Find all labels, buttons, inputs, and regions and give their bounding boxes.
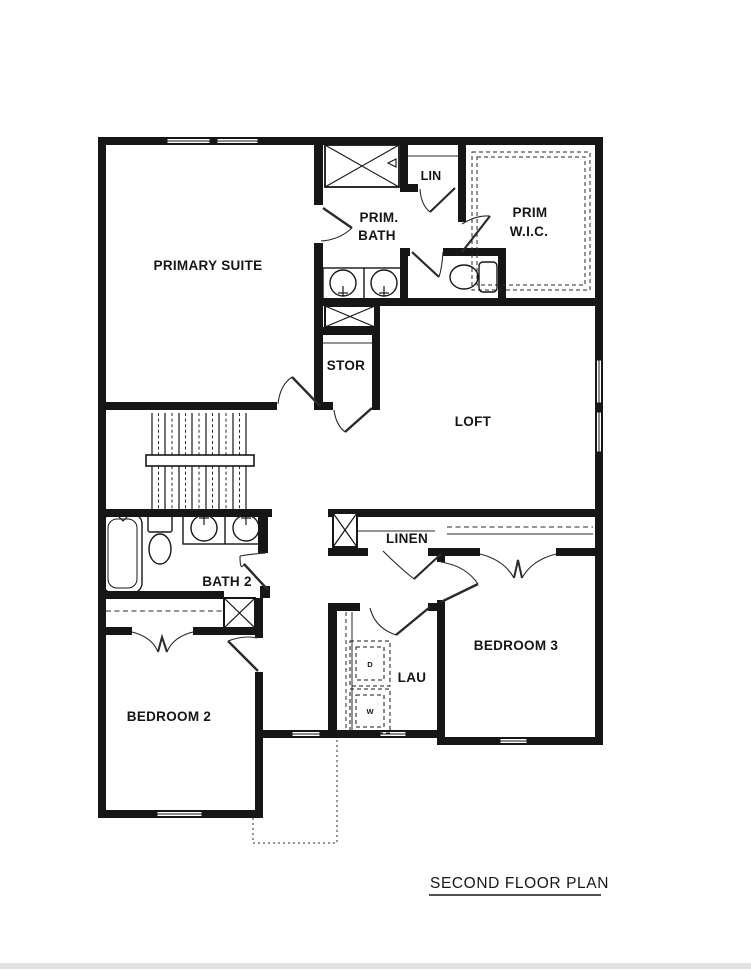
room-label-bedroom2: BEDROOM 2	[127, 709, 211, 724]
primary-suite-door	[278, 377, 320, 406]
bedroom3-closet-doors	[480, 554, 556, 578]
prim-bath-door	[321, 208, 352, 241]
window	[217, 139, 258, 144]
plan-title: SECOND FLOOR PLAN	[430, 875, 609, 892]
bedroom2-closet-doors	[132, 632, 193, 652]
bedroom2-door	[228, 637, 258, 671]
plan-title-block: SECOND FLOOR PLAN	[429, 875, 609, 895]
toilet-room-door	[412, 252, 443, 277]
bottom-edge-artifact	[0, 963, 751, 969]
bath2-toilet-fixture	[148, 516, 172, 564]
room-label-prim-bath-1: PRIM.	[359, 210, 398, 225]
window	[597, 412, 602, 452]
room-label-lin: LIN	[421, 169, 442, 183]
room-label-prim-wic-1: PRIM	[513, 205, 548, 220]
chase-box	[325, 306, 375, 327]
lau-counter-lines	[346, 612, 352, 731]
roof-below-outline	[253, 739, 337, 843]
chase-box	[333, 513, 357, 547]
room-label-primary-suite: PRIMARY SUITE	[154, 258, 263, 273]
wic-shelving	[472, 152, 590, 290]
bath2-tub-fixture	[103, 513, 142, 593]
floor-plan-page: PRIMARY SUITE PRIM. BATH LIN PRIM W.I.C.…	[0, 0, 751, 971]
window	[380, 732, 406, 737]
prim-toilet-fixture	[450, 262, 497, 292]
room-label-stor: STOR	[327, 358, 365, 373]
room-label-bath2: BATH 2	[202, 574, 252, 589]
appliance-label-dryer: D	[367, 660, 373, 669]
chase-box	[224, 598, 255, 628]
faucet-icon	[379, 286, 389, 296]
appliance-label-washer: W	[366, 707, 374, 716]
window	[157, 812, 202, 817]
faucet-icon	[338, 286, 348, 296]
room-label-linen: LINEN	[386, 531, 428, 546]
floor-plan-drawing: PRIMARY SUITE PRIM. BATH LIN PRIM W.I.C.…	[0, 0, 751, 971]
window	[167, 139, 210, 144]
room-label-prim-bath-2: BATH	[358, 228, 396, 243]
wic-door	[462, 216, 490, 252]
lin-closet-door	[420, 188, 455, 212]
shower-fixture	[325, 145, 399, 187]
stair-handrail	[146, 455, 254, 466]
lau-door	[370, 607, 430, 635]
stor-door	[334, 408, 372, 432]
room-label-loft: LOFT	[455, 414, 492, 429]
window	[292, 732, 320, 737]
prim-vanity-fixture	[323, 268, 403, 300]
window	[500, 739, 527, 744]
room-label-prim-wic-2: W.I.C.	[510, 224, 549, 239]
room-label-lau: LAU	[398, 670, 427, 685]
room-label-bedroom3: BEDROOM 3	[474, 638, 559, 653]
stairs	[146, 413, 254, 509]
window	[597, 360, 602, 403]
bedroom3-door	[441, 562, 478, 602]
